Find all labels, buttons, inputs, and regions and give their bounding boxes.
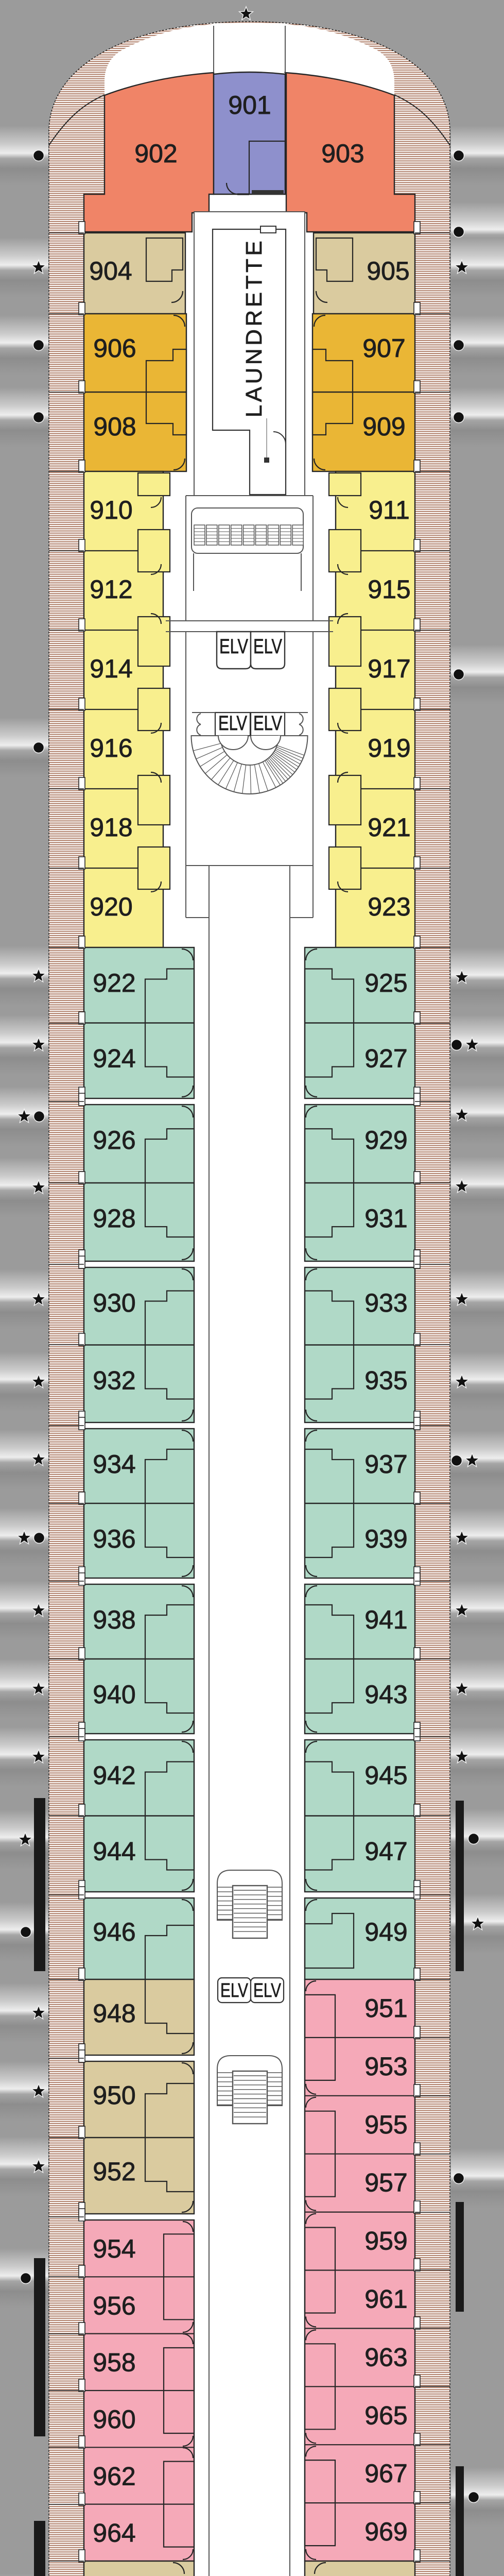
svg-text:945: 945	[364, 1761, 407, 1790]
svg-text:924: 924	[93, 1044, 135, 1073]
svg-text:911: 911	[369, 496, 410, 524]
svg-text:942: 942	[93, 1761, 135, 1790]
svg-text:ELV: ELV	[220, 1980, 249, 2002]
svg-text:932: 932	[93, 1366, 135, 1395]
svg-text:963: 963	[364, 2343, 407, 2371]
svg-text:907: 907	[362, 334, 405, 363]
svg-text:957: 957	[364, 2168, 407, 2197]
svg-text:928: 928	[93, 1204, 135, 1233]
svg-text:903: 903	[321, 139, 364, 168]
svg-text:937: 937	[364, 1450, 407, 1479]
svg-text:951: 951	[364, 1994, 407, 2023]
svg-text:902: 902	[134, 139, 177, 168]
svg-text:948: 948	[93, 1999, 135, 2028]
svg-text:960: 960	[93, 2405, 135, 2434]
svg-text:926: 926	[93, 1126, 135, 1155]
svg-text:941: 941	[364, 1605, 407, 1634]
svg-text:914: 914	[90, 654, 132, 683]
svg-text:938: 938	[93, 1605, 135, 1634]
svg-text:930: 930	[93, 1289, 135, 1317]
svg-text:933: 933	[364, 1289, 407, 1317]
svg-text:916: 916	[90, 734, 132, 762]
svg-text:956: 956	[93, 2291, 135, 2320]
svg-text:919: 919	[368, 734, 410, 762]
svg-text:946: 946	[93, 1918, 135, 1946]
svg-text:969: 969	[364, 2517, 407, 2546]
svg-text:931: 931	[364, 1204, 407, 1233]
svg-text:965: 965	[364, 2401, 407, 2430]
svg-text:949: 949	[364, 1918, 407, 1946]
svg-text:962: 962	[93, 2462, 135, 2490]
svg-text:961: 961	[364, 2285, 407, 2314]
svg-text:922: 922	[93, 969, 135, 997]
svg-text:934: 934	[93, 1450, 135, 1479]
svg-text:952: 952	[93, 2157, 135, 2186]
svg-text:925: 925	[364, 969, 407, 997]
svg-text:943: 943	[364, 1680, 407, 1709]
svg-text:955: 955	[364, 2110, 407, 2139]
svg-text:944: 944	[93, 1837, 135, 1866]
svg-text:929: 929	[364, 1126, 407, 1155]
svg-text:901: 901	[228, 91, 271, 120]
svg-text:959: 959	[364, 2227, 407, 2256]
svg-text:953: 953	[364, 2052, 407, 2081]
svg-text:ELV: ELV	[219, 635, 248, 658]
svg-text:936: 936	[93, 1524, 135, 1553]
svg-text:917: 917	[368, 654, 410, 683]
svg-text:921: 921	[368, 813, 410, 842]
svg-text:939: 939	[364, 1524, 407, 1553]
svg-text:905: 905	[367, 257, 409, 285]
svg-text:912: 912	[90, 575, 132, 604]
svg-text:908: 908	[93, 412, 136, 441]
svg-text:964: 964	[93, 2519, 135, 2548]
svg-text:ELV: ELV	[253, 712, 282, 735]
svg-text:909: 909	[362, 412, 405, 441]
svg-text:920: 920	[90, 892, 132, 921]
svg-text:950: 950	[93, 2081, 135, 2110]
svg-text:910: 910	[90, 496, 132, 524]
svg-text:906: 906	[93, 334, 136, 363]
svg-text:935: 935	[364, 1366, 407, 1395]
svg-text:954: 954	[93, 2234, 135, 2263]
svg-text:967: 967	[364, 2459, 407, 2488]
svg-text:904: 904	[89, 257, 132, 285]
svg-text:ELV: ELV	[218, 712, 247, 735]
svg-text:ELV: ELV	[253, 1980, 282, 2002]
svg-text:915: 915	[368, 575, 410, 604]
svg-text:940: 940	[93, 1680, 135, 1709]
svg-text:918: 918	[90, 813, 132, 842]
svg-text:958: 958	[93, 2348, 135, 2377]
svg-text:947: 947	[364, 1837, 407, 1866]
svg-text:923: 923	[368, 892, 410, 921]
svg-text:LAUNDRETTE: LAUNDRETTE	[241, 238, 267, 417]
svg-text:ELV: ELV	[253, 635, 282, 658]
svg-text:927: 927	[364, 1044, 407, 1073]
